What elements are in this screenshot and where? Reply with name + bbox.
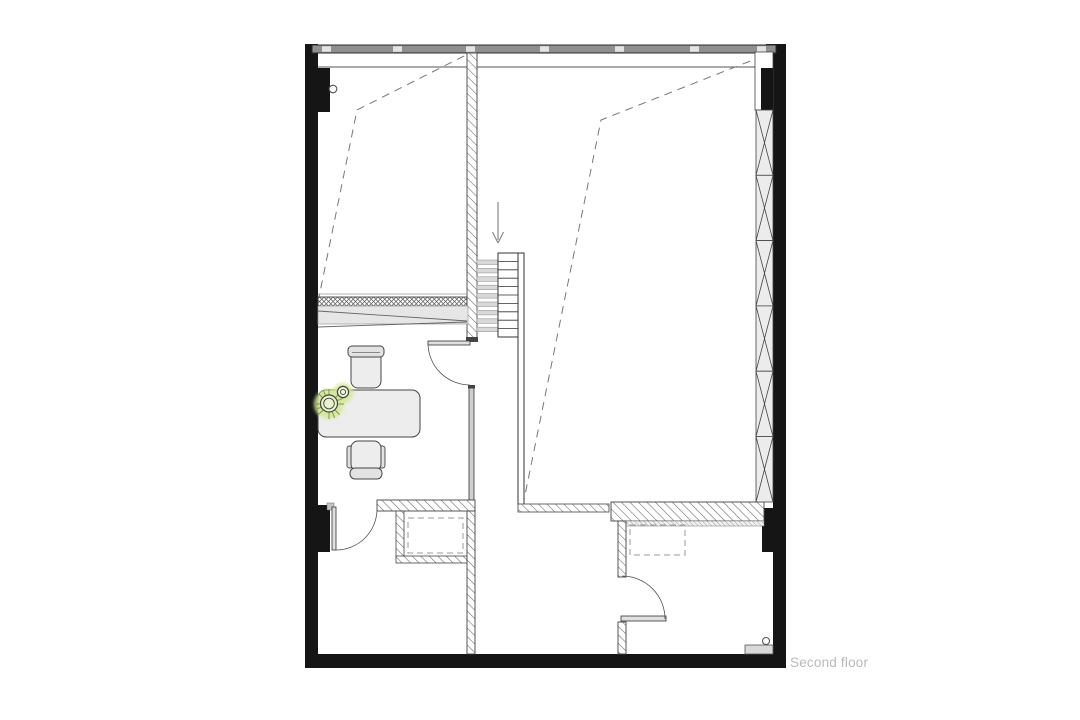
closet-dashed-outline	[408, 518, 463, 553]
closet-bottom-wall	[396, 556, 475, 563]
interior-wall-vertical-hatched	[467, 53, 477, 341]
mullion-gap	[757, 46, 766, 52]
door-stop-top-left	[329, 85, 337, 93]
mullion-gap	[540, 46, 549, 52]
partition-cap	[468, 385, 475, 389]
sliding-panel	[318, 306, 468, 327]
office-chair-bottom	[347, 441, 385, 479]
stair-treads-right-flight	[498, 253, 518, 337]
door-leaf	[621, 616, 666, 621]
stair-down-arrow-icon	[493, 202, 504, 243]
mullion-gap	[690, 46, 699, 52]
door-stop-bottom-right	[763, 638, 770, 645]
mullion-gap	[393, 46, 402, 52]
mullion-gap	[322, 46, 331, 52]
door-swing-arc	[336, 509, 377, 550]
floor-label: Second floor	[790, 655, 869, 670]
floor-plan-page: Second floor	[0, 0, 1080, 720]
bedroom-north-wall	[611, 502, 764, 521]
door-swing-arc	[428, 343, 470, 385]
wall-bottom	[305, 654, 786, 668]
office-chair-top	[348, 346, 384, 388]
office-door	[428, 341, 470, 385]
interior-wall-bottom-vertical	[467, 511, 475, 654]
wall-right	[773, 44, 786, 668]
bottom-left-door	[327, 503, 377, 550]
braced-facade-column	[755, 52, 773, 502]
partition-below-door	[469, 387, 474, 504]
hall-south-wall	[518, 504, 609, 512]
void-dashed-outline-left	[318, 55, 466, 302]
door-swing-arc	[622, 576, 665, 619]
bedroom-door	[621, 576, 666, 621]
mullion-gap	[615, 46, 624, 52]
bedroom-west-wall-upper	[618, 521, 626, 577]
staircase	[477, 202, 524, 505]
void-dashed-outline-right	[524, 56, 763, 500]
window-band	[312, 45, 776, 67]
wall-left	[305, 44, 318, 668]
door-leaf	[332, 507, 336, 550]
mullion-gap	[466, 46, 475, 52]
wall-pier-top-left	[318, 68, 330, 112]
office-furniture	[314, 346, 420, 479]
closet-top-wall	[377, 500, 475, 511]
wall-pier-bottom-left	[318, 505, 330, 552]
floor-plan-drawing: Second floor	[0, 0, 1080, 720]
low-cabinet-bottom-right	[745, 645, 773, 654]
glazed-partition-band	[318, 297, 467, 306]
door-leaf	[428, 341, 470, 345]
closet-left-wall	[396, 511, 404, 558]
bedroom-west-wall-lower	[618, 622, 626, 654]
bedroom-dashed-outline	[630, 525, 685, 555]
stair-side-wall	[518, 253, 524, 505]
stair-treads-left-flight	[477, 260, 498, 332]
